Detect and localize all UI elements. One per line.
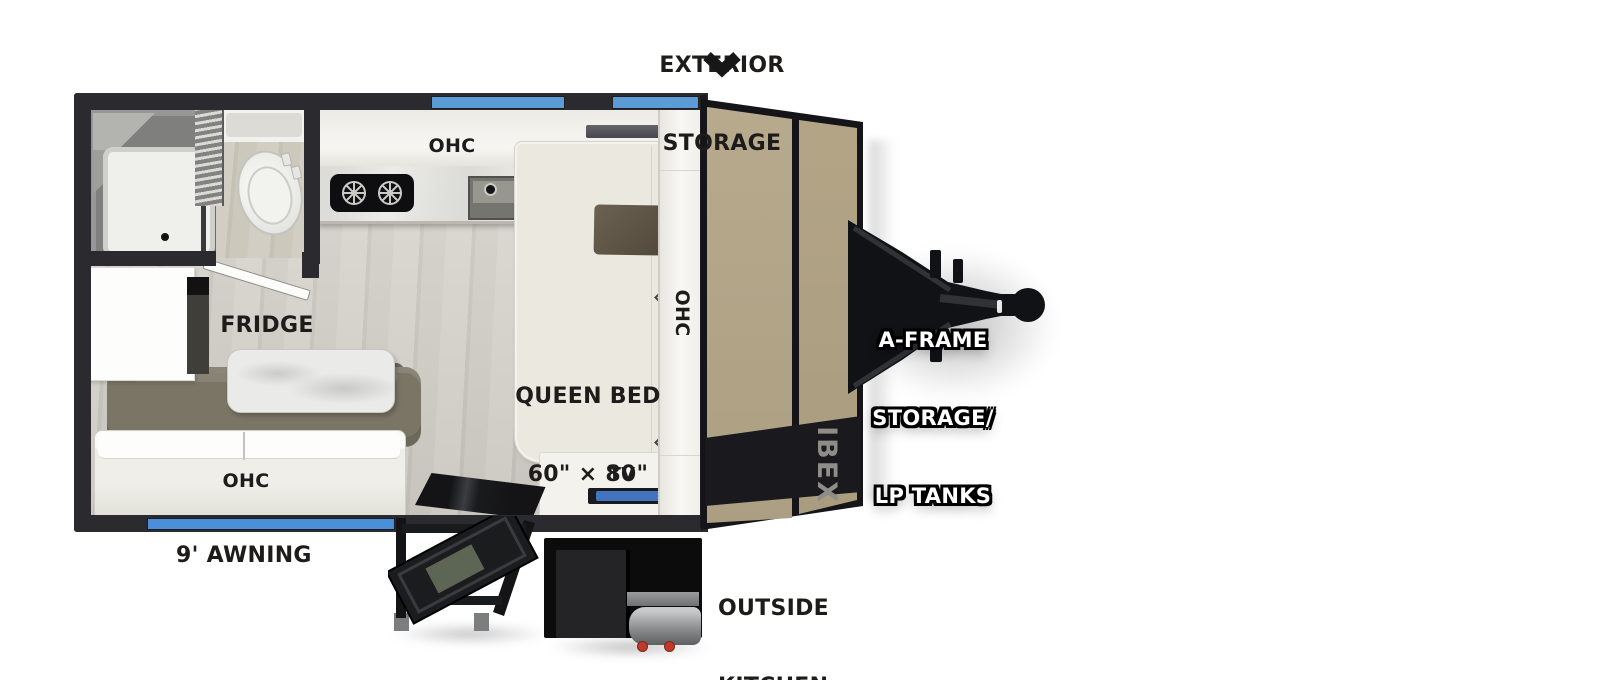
outside-kitchen-panel (556, 550, 630, 638)
fridge-vent (187, 277, 209, 295)
window-top-left (431, 96, 565, 109)
stove-cooktop (330, 174, 414, 212)
kitchen-ohc-label: OHC (429, 133, 476, 159)
bed-head-rail (586, 125, 668, 138)
accordion-door (195, 108, 224, 206)
accordion-door-jamb (201, 206, 206, 252)
fridge-label: FRIDGE (220, 313, 313, 339)
awning-rail-window (147, 518, 395, 530)
a-frame-line3: LP TANKS (872, 483, 993, 509)
a-frame-label: A-FRAME STORAGE/ LP TANKS (872, 275, 993, 561)
front-ohc-label: OHC (669, 283, 695, 343)
bathroom-partition-wall (304, 94, 320, 264)
awning-label: 9' AWNING (176, 543, 312, 569)
wall-rear (74, 93, 91, 532)
a-frame-line1: A-FRAME (872, 327, 993, 353)
sink-faucet (484, 183, 497, 196)
outside-kitchen-griddle (629, 607, 701, 645)
outside-kitchen-line1: OUTSIDE (718, 596, 829, 622)
exterior-storage-label: EXTERIOR STORAGE (659, 1, 784, 209)
outside-kitchen-line2: KITCHEN (718, 674, 829, 680)
floorplan-canvas: IBEX EXTERIOR STORAGE (0, 0, 1600, 680)
griddle-knob (664, 641, 675, 652)
toilet-room-shelf-inset (226, 113, 302, 137)
bathroom-door-post (302, 252, 319, 278)
dinette-table (227, 349, 395, 413)
cabinet-seam (243, 432, 245, 460)
shower-partition-wall (88, 251, 216, 266)
chevron-down-icon (700, 50, 744, 82)
burner-icons (330, 174, 414, 212)
outside-kitchen-rail (627, 592, 699, 606)
dinette-ohc-label: OHC (223, 468, 270, 494)
queen-bed-line2: 60" × 80" (515, 462, 660, 488)
queen-bed-line1: QUEEN BED (515, 384, 660, 410)
shower-drain (161, 233, 169, 241)
fridge (81, 267, 195, 381)
griddle-knob (637, 641, 648, 652)
dinette-overhead-cabinet-top (98, 432, 400, 459)
tv-label: TV (609, 462, 636, 488)
brand-logo: IBEX (792, 430, 862, 500)
queen-bed-label: QUEEN BED 60" × 80" (515, 332, 660, 540)
a-frame-line2: STORAGE/ (872, 405, 993, 431)
exterior-storage-line2: STORAGE (659, 131, 784, 157)
outside-kitchen-label: OUTSIDE KITCHEN (718, 544, 829, 680)
